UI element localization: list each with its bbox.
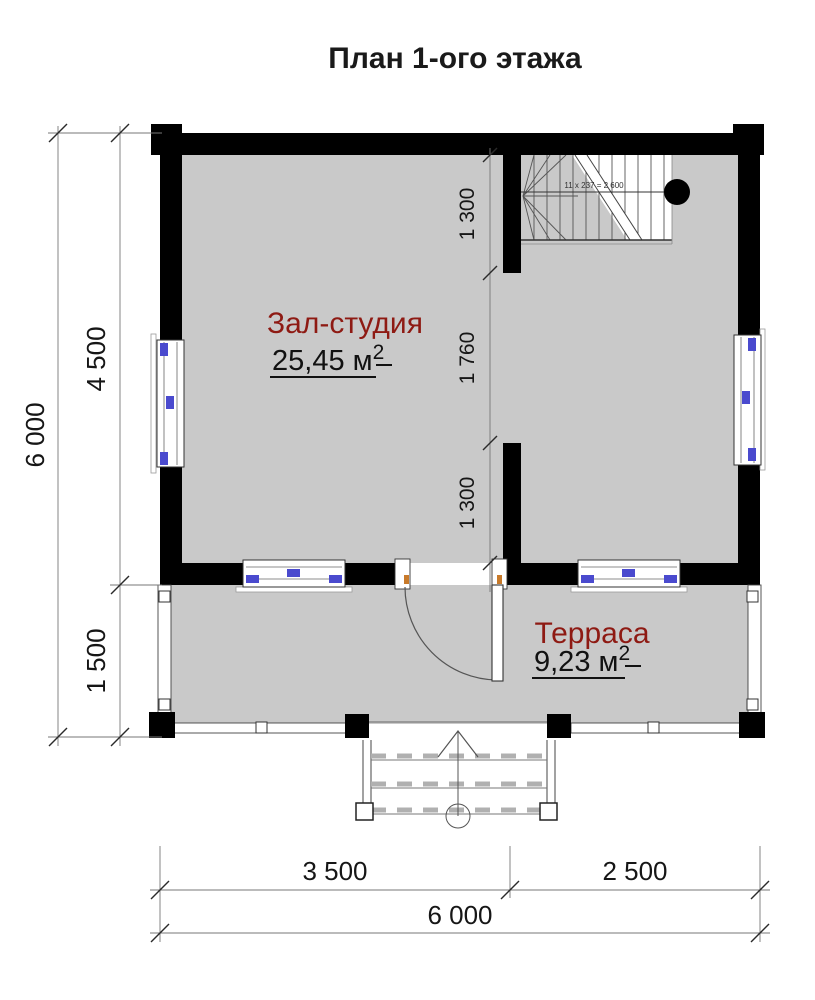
window-right-mark-bottom — [748, 448, 756, 461]
window-bottom-right-sill — [571, 587, 687, 592]
door-hinge-mark-right — [497, 575, 502, 584]
floor-plan-page: План 1-ого этажа 11 x 237 = 2 600 — [0, 0, 815, 1000]
porch-footing-left — [356, 803, 373, 820]
window-right-mark-mid — [742, 391, 750, 404]
dimensions-bottom: 3 500 2 500 6 000 — [150, 846, 770, 942]
window-bottom-left — [236, 560, 352, 592]
door-jamb-left — [395, 559, 410, 589]
baluster — [159, 699, 170, 710]
window-bottom-left-mark-1 — [246, 575, 259, 583]
railing-bottom-right — [571, 723, 749, 733]
porch-step-lines — [371, 756, 547, 814]
dim-left-total: 6 000 — [20, 402, 50, 467]
door-leaf — [492, 585, 503, 681]
baluster — [648, 722, 659, 733]
railing-post-left — [149, 712, 175, 738]
window-bottom-right-mark-1 — [581, 575, 594, 583]
window-bottom-left-mark-2 — [287, 569, 300, 577]
window-right-mark-top — [748, 338, 756, 351]
baluster — [256, 722, 267, 733]
hall-area: 25,45 м2 — [272, 341, 384, 377]
window-left-mark-top — [160, 343, 168, 356]
partition-lower — [503, 443, 521, 563]
window-bottom-right — [571, 560, 687, 592]
staircase: 11 x 237 = 2 600 — [521, 155, 690, 244]
dim-bottom-total: 6 000 — [427, 900, 492, 930]
entry-direction-arrow — [438, 731, 478, 828]
door-opening — [398, 563, 504, 585]
door-hinge-mark-left — [404, 575, 409, 584]
window-left-mark-mid — [166, 396, 174, 409]
baluster — [747, 591, 758, 602]
corner-post-top-right — [733, 124, 764, 155]
terrace-floor — [160, 585, 760, 724]
dim-mid-upper: 1 300 — [456, 188, 479, 241]
baluster — [159, 591, 170, 602]
baluster — [747, 699, 758, 710]
window-bottom-right-mark-3 — [664, 575, 677, 583]
window-left-sill — [151, 334, 156, 473]
dim-mid-lower: 1 300 — [456, 477, 479, 530]
window-bottom-left-sill — [236, 587, 352, 592]
dim-mid-middle: 1 760 — [456, 332, 479, 385]
window-bottom-right-mark-2 — [622, 569, 635, 577]
corner-post-top-left — [151, 124, 182, 155]
wall-top — [160, 133, 760, 155]
stair-annotation: 11 x 237 = 2 600 — [564, 181, 624, 190]
stair-start-dot — [664, 179, 690, 205]
window-bottom-left-mark-3 — [329, 575, 342, 583]
dimensions-left: 6 000 4 500 1 500 — [20, 124, 162, 746]
window-right — [734, 329, 765, 470]
railing-post-porch-right — [547, 714, 571, 738]
hall-name: Зал-студия — [267, 307, 423, 340]
porch-steps — [356, 731, 557, 828]
dim-left-upper: 4 500 — [81, 326, 111, 391]
railing-post-porch-left — [345, 714, 369, 738]
page-title: План 1-ого этажа — [328, 42, 582, 75]
partition-upper — [503, 155, 521, 273]
dim-bottom-right: 2 500 — [602, 856, 667, 886]
dim-left-lower: 1 500 — [81, 628, 111, 693]
dim-bottom-left: 3 500 — [302, 856, 367, 886]
terrace-area: 9,23 м2 — [534, 642, 630, 678]
railing-post-right — [739, 712, 765, 738]
floor-plan-canvas: План 1-ого этажа 11 x 237 = 2 600 — [0, 0, 815, 1000]
window-left — [151, 334, 184, 473]
porch-footing-right — [540, 803, 557, 820]
window-left-mark-bottom — [160, 452, 168, 465]
